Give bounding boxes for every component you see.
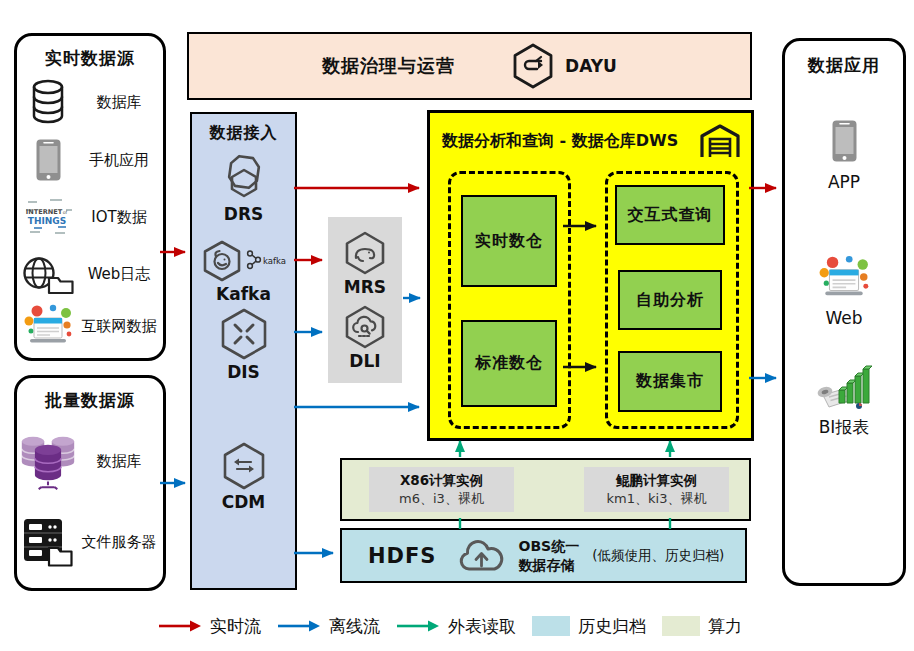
instance-detail: km1、ki3、裸机 [584, 490, 729, 508]
weblog-icon [19, 253, 77, 295]
legend-label: 实时流 [210, 615, 261, 638]
obs-cloud-upload-icon [457, 538, 505, 574]
source-row-weblog: Web日志 [19, 248, 161, 300]
database-icon [19, 78, 77, 126]
hdfs-label: HDFS [368, 544, 436, 568]
obs-storage-label: OBS统一数据存储 [518, 537, 579, 573]
app-label: Web [825, 308, 862, 328]
legend-label: 外表读取 [448, 615, 516, 638]
service-label: DIS [227, 362, 260, 382]
dli-icon [343, 305, 387, 349]
service-mrs: MRS [328, 231, 402, 297]
source-row-database: 数据库 [19, 74, 161, 130]
svg-text:kafka: kafka [263, 256, 286, 266]
architecture-diagram: 数据治理与运营 DAYU 实时数据源 数据库 [0, 0, 914, 651]
service-label: DLI [349, 351, 380, 371]
source-row-mobile: 手机应用 [19, 132, 161, 188]
node-interactive-query: 交互式查询 [615, 185, 725, 245]
processing-box: MRS DLI [328, 217, 402, 383]
node-label: 实时数仓 [475, 231, 543, 252]
source-label: IOT数据 [77, 208, 161, 227]
legend-label: 算力 [708, 615, 742, 638]
legend-history-archive: 历史归档 [532, 615, 646, 638]
warehouse-icon [697, 121, 743, 161]
internet-data-icon [19, 303, 77, 349]
service-drs: DRS [192, 152, 295, 224]
service-label: Kafka [216, 284, 271, 304]
hdfs-obs-storage-box: HDFS OBS统一数据存储 (低频使用、历史归档) [340, 528, 747, 583]
legend-offline-flow: 离线流 [277, 615, 380, 638]
purple-database-cluster-icon [19, 430, 77, 492]
realtime-sources-title: 实时数据源 [17, 47, 163, 70]
kunpeng-instance-label: 鲲鹏计算实例 km1、ki3、裸机 [584, 467, 729, 512]
kafka-icon [201, 240, 243, 282]
cdm-icon [221, 442, 267, 490]
compute-instances-box: X86计算实例 m6、i3、裸机 鲲鹏计算实例 km1、ki3、裸机 [340, 458, 751, 521]
node-label: 数据集市 [636, 371, 704, 392]
service-label: CDM [222, 492, 266, 512]
node-realtime-dw: 实时数仓 [461, 195, 557, 287]
red-arrow-icon [158, 619, 202, 633]
mobile-app-icon [19, 138, 77, 182]
data-ingestion-box: 数据接入 DRS kafka [190, 112, 297, 590]
batch-sources-title: 批量数据源 [17, 389, 163, 412]
instance-detail: m6、i3、裸机 [369, 490, 514, 508]
legend-compute-power: 算力 [662, 615, 742, 638]
data-ingestion-title: 数据接入 [192, 123, 295, 144]
legend-label: 离线流 [329, 615, 380, 638]
drs-icon [218, 152, 270, 202]
source-label: 手机应用 [77, 151, 161, 170]
kafka-logo: kafka [246, 249, 286, 273]
web-collage-icon [818, 253, 870, 303]
app-item-web: Web [785, 253, 903, 328]
mrs-icon [343, 231, 387, 275]
service-dis: DIS [192, 308, 295, 382]
node-standard-dw: 标准数仓 [461, 320, 557, 407]
governance-product-label: DAYU [565, 56, 617, 76]
governance-title: 数据治理与运营 [322, 54, 455, 78]
batch-sources-box: 批量数据源 [14, 375, 166, 591]
source-row-batch-database: 数据库 [19, 420, 161, 502]
compute-swatch [662, 616, 700, 636]
source-label: 文件服务器 [77, 533, 161, 552]
app-phone-icon [831, 119, 858, 163]
iot-icon: INTERNET of THINGS [19, 195, 77, 239]
service-label: DRS [224, 204, 263, 224]
service-label: MRS [344, 277, 386, 297]
data-applications-title: 数据应用 [785, 54, 903, 77]
dws-warehouse-box: 数据分析和查询 - 数据仓库DWS 实时数仓 标准数仓 交互式查询 自助分析 数… [427, 110, 754, 441]
green-arrow-icon [396, 619, 440, 633]
source-row-iot: INTERNET of THINGS IOT数据 [19, 188, 161, 246]
svg-text:of: of [63, 210, 68, 215]
app-label: APP [828, 172, 860, 192]
legend-label: 历史归档 [578, 615, 646, 638]
instance-title: X86计算实例 [369, 471, 514, 490]
dws-header: 数据分析和查询 - 数据仓库DWS [442, 121, 743, 161]
instance-title: 鲲鹏计算实例 [584, 471, 729, 490]
service-cdm: CDM [192, 442, 295, 512]
dws-title: 数据分析和查询 - 数据仓库DWS [442, 131, 678, 152]
realtime-sources-box: 实时数据源 数据库 手机应用 [14, 33, 166, 361]
dayu-icon [511, 43, 555, 89]
svg-text:THINGS: THINGS [28, 216, 66, 226]
app-label: BI报表 [819, 416, 870, 439]
app-item-bi: BI报表 [785, 361, 903, 439]
source-label: 数据库 [77, 452, 161, 471]
node-label: 交互式查询 [628, 205, 713, 226]
source-row-file-server: 文件服务器 [19, 508, 161, 576]
bi-report-icon [815, 361, 873, 409]
data-applications-box: 数据应用 APP W [782, 38, 906, 586]
blue-arrow-icon [277, 619, 321, 633]
app-item-app: APP [785, 119, 903, 192]
source-label: 互联网数据 [77, 317, 161, 336]
dis-icon [219, 308, 269, 360]
x86-instance-label: X86计算实例 m6、i3、裸机 [369, 467, 514, 512]
archive-swatch [532, 616, 570, 636]
legend-external-read: 外表读取 [396, 615, 516, 638]
legend-realtime-flow: 实时流 [158, 615, 261, 638]
source-row-internet: 互联网数据 [19, 300, 161, 352]
service-kafka: kafka Kafka [192, 240, 295, 304]
node-self-service-analysis: 自助分析 [618, 270, 722, 330]
legend: 实时流 离线流 外表读取 历史归档 算力 [158, 609, 818, 643]
service-dli: DLI [328, 305, 402, 371]
source-label: 数据库 [77, 93, 161, 112]
source-label: Web日志 [77, 265, 161, 284]
governance-banner: 数据治理与运营 DAYU [187, 32, 752, 100]
node-data-mart: 数据集市 [618, 351, 722, 412]
node-label: 标准数仓 [475, 353, 543, 374]
storage-note: (低频使用、历史归档) [592, 547, 724, 565]
svg-text:INTERNET: INTERNET [26, 208, 63, 216]
file-server-icon [19, 517, 77, 567]
node-label: 自助分析 [636, 290, 704, 311]
